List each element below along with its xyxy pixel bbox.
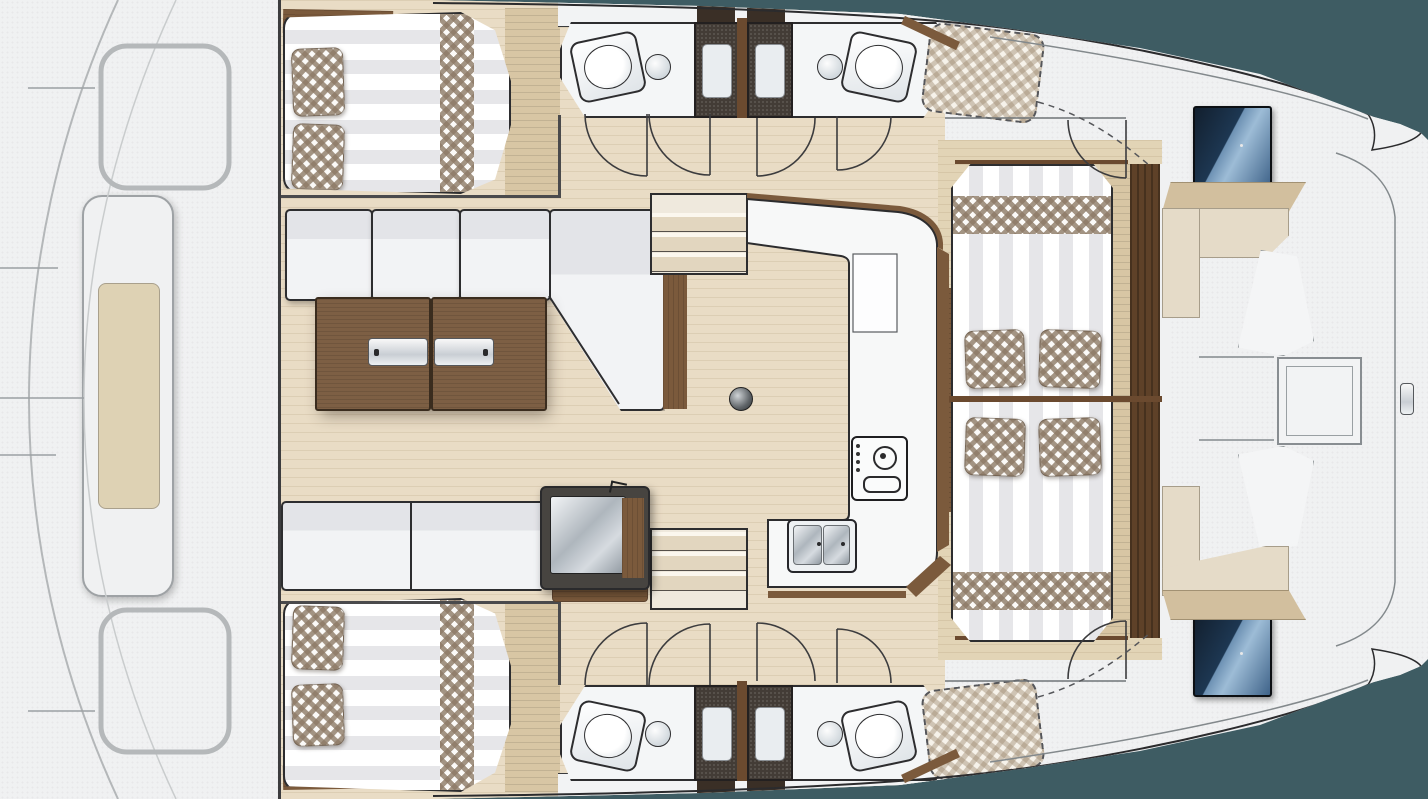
deck-hatch-inner — [1286, 366, 1353, 436]
blanket-runner — [953, 572, 1111, 610]
cockpit-trim-bottom — [1162, 590, 1306, 620]
top-load-fridge — [540, 486, 650, 590]
round-sink — [817, 54, 843, 80]
table-handle — [368, 338, 428, 366]
stove-knob — [856, 468, 860, 472]
toilet-bowl — [851, 40, 907, 93]
fwd-cabin-top-bed — [283, 12, 511, 194]
wall — [281, 195, 560, 198]
forward-bulkhead-line — [278, 0, 281, 799]
transom-handle — [1400, 383, 1414, 415]
stove-cooktop — [851, 436, 908, 501]
aft-cabin-bottom-bed — [951, 400, 1113, 642]
mast-post — [729, 387, 753, 411]
sofa-seat — [459, 209, 551, 301]
shower-tray — [755, 707, 785, 761]
faucet — [817, 542, 821, 546]
blanket-runner — [440, 600, 474, 790]
wall — [558, 115, 561, 198]
pillow — [291, 605, 345, 671]
fwd-cabin-top-floor-strip — [505, 8, 560, 195]
shower-tray — [702, 707, 732, 761]
round-sink — [645, 721, 671, 747]
pillow — [291, 47, 345, 117]
pillow — [291, 683, 345, 747]
fridge-handle — [609, 480, 627, 495]
stair-step — [652, 253, 746, 272]
heads-bottom — [556, 677, 946, 799]
stove-knob — [856, 452, 860, 456]
fridge-wood-side — [622, 498, 644, 578]
toilet-bowl — [851, 709, 907, 762]
sofa-seat — [371, 209, 461, 301]
fridge-lid — [550, 496, 626, 574]
helm-screen-bottom — [1193, 614, 1272, 697]
boat-silhouette — [0, 0, 1428, 799]
table-handle — [434, 338, 494, 366]
galley-double-sink — [787, 519, 857, 573]
stove-knob — [856, 444, 860, 448]
bow-pod-cushion — [98, 283, 160, 509]
bench-split — [410, 503, 412, 589]
burner-cap — [880, 453, 886, 459]
stair-step — [652, 213, 746, 232]
stair-step — [652, 233, 746, 252]
fwd-cabin-bottom-bed — [283, 598, 511, 792]
toilet-bowl — [580, 40, 636, 93]
pillow — [291, 123, 345, 191]
stairs-top-hull — [650, 193, 748, 275]
sink-basin — [823, 525, 850, 565]
toilet-bowl — [580, 709, 636, 762]
sunpad-dashed-bottom — [920, 677, 1046, 780]
pillow — [1038, 417, 1102, 477]
shower-tray — [755, 44, 785, 98]
sunpad-dashed-top — [920, 21, 1046, 124]
pillow — [1038, 329, 1102, 389]
shower-stall — [694, 22, 740, 118]
deck-plan-stage — [0, 0, 1428, 799]
helm-screen-top — [1193, 106, 1272, 189]
center-divider — [737, 681, 747, 781]
stove-knob — [856, 460, 860, 464]
aft-cabin-headwall — [955, 160, 1128, 164]
shower-tray — [702, 44, 732, 98]
pillow — [964, 329, 1026, 389]
salon-bench — [281, 501, 561, 591]
salon-table — [315, 297, 543, 407]
blanket-runner — [440, 14, 474, 192]
stair-step — [652, 572, 746, 591]
shower-stall — [747, 685, 793, 781]
blanket-runner — [953, 196, 1111, 234]
screen-dot — [1240, 652, 1243, 655]
burner-oval — [863, 476, 901, 493]
cockpit-bench-top-leg — [1162, 208, 1200, 318]
handle-pip — [483, 349, 488, 356]
faucet — [841, 542, 845, 546]
fwd-cabin-bottom-floor-strip — [505, 602, 560, 792]
berth-divider — [938, 396, 1162, 402]
stair-step — [652, 552, 746, 571]
wall — [558, 601, 561, 685]
stair-step — [652, 532, 746, 551]
round-sink — [645, 54, 671, 80]
screen-dot — [1240, 144, 1243, 147]
stairs-bottom-hull — [650, 528, 748, 610]
round-sink — [817, 721, 843, 747]
shower-stall — [694, 685, 740, 781]
deck-hatch — [1277, 357, 1362, 445]
sofa-seat — [285, 209, 373, 301]
shower-stall — [747, 22, 793, 118]
center-divider — [737, 18, 747, 118]
pillow — [964, 417, 1026, 477]
handle-pip — [374, 349, 379, 356]
wall — [281, 601, 560, 604]
heads-top — [556, 0, 946, 122]
aft-cabin-top-bed — [951, 164, 1113, 404]
